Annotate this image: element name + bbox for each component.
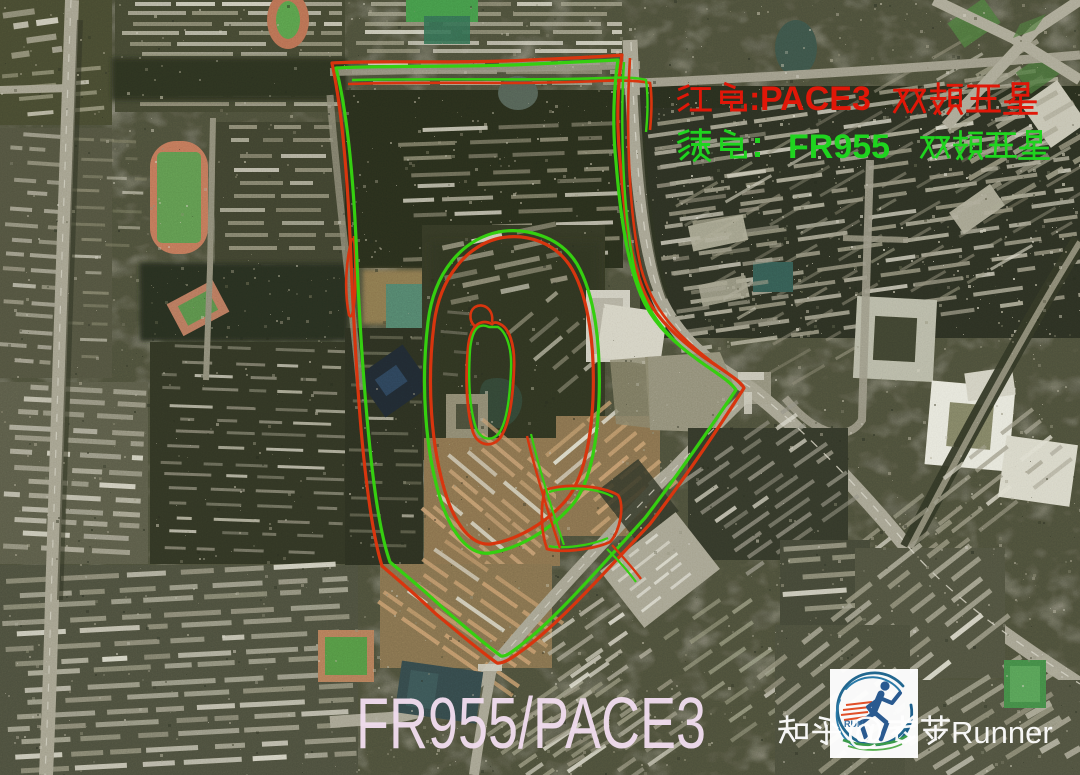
svg-text:FR955: FR955 — [788, 128, 890, 166]
svg-text:PACE3: PACE3 — [760, 80, 871, 118]
svg-text::: : — [749, 80, 760, 118]
svg-text:FR955/PACE3: FR955/PACE3 — [356, 684, 706, 764]
svg-text:Runner: Runner — [951, 715, 1053, 750]
svg-text:@: @ — [846, 711, 885, 753]
